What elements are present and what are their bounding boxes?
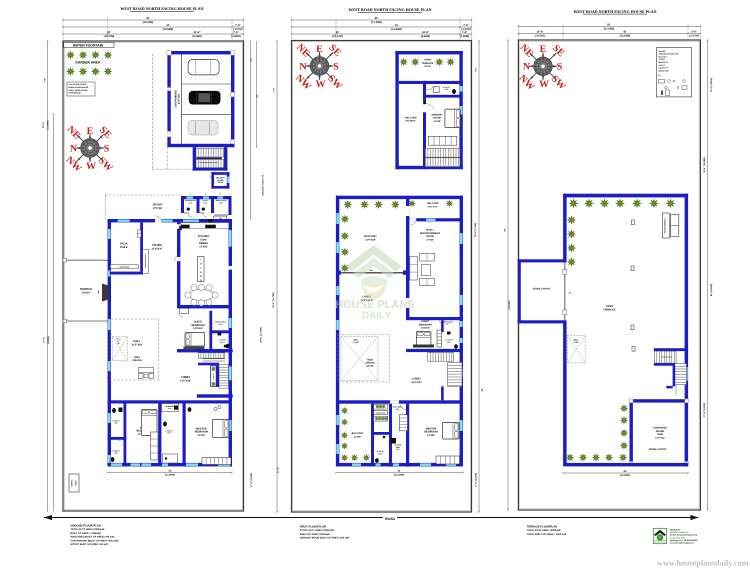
svg-text:11'X20': 11'X20' xyxy=(354,435,362,438)
svg-text:17'5"X8': 17'5"X8' xyxy=(153,207,163,210)
svg-text:23'0"X20': 23'0"X20' xyxy=(178,93,181,104)
svg-text:ROOM: ROOM xyxy=(218,181,224,184)
svg-text:[13.56M]: [13.56M] xyxy=(163,28,174,31)
svg-text:TOTAL PLOT AREA =5000sqft: TOTAL PLOT AREA =5000sqft xyxy=(527,529,561,532)
svg-text:BALCONY: BALCONY xyxy=(427,202,439,205)
svg-text:W: W xyxy=(539,79,549,90)
svg-text:17'-6" [5.33M]: 17'-6" [5.33M] xyxy=(250,473,253,487)
svg-text:[12.80M]: [12.80M] xyxy=(620,474,630,477)
svg-text:42': 42' xyxy=(623,470,627,473)
svg-text:DAILY: DAILY xyxy=(362,311,391,322)
svg-text:[11.59M]: [11.59M] xyxy=(47,120,50,129)
svg-text:42': 42' xyxy=(623,30,627,33)
svg-text:15 DP: 15 DP xyxy=(574,341,580,344)
svg-text:20'-6" [1.74M]: 20'-6" [1.74M] xyxy=(474,223,477,237)
svg-text:WEST ROAD NORTH FACING HOUSE P: WEST ROAD NORTH FACING HOUSE PLAN xyxy=(120,6,203,11)
svg-text:BALCONY: BALCONY xyxy=(405,116,417,119)
svg-text:[1.07M]: [1.07M] xyxy=(690,35,699,38)
svg-text:[4.02M]: [4.02M] xyxy=(536,35,545,38)
svg-text:E: E xyxy=(87,126,94,137)
svg-text:GARDEN AREA: GARDEN AREA xyxy=(75,60,101,64)
svg-text:50': 50' xyxy=(504,228,507,231)
svg-text:4'X5': 4'X5' xyxy=(445,88,449,91)
svg-text:17'-6": 17'-6" xyxy=(43,337,46,343)
svg-text:17'X20': 17'X20' xyxy=(199,246,208,249)
svg-text:50'-6" [15.39M]: 50'-6" [15.39M] xyxy=(703,157,706,173)
svg-text:DESIGN BY: DESIGN BY xyxy=(670,529,681,532)
svg-text:ALL WATER TANKS,: ALL WATER TANKS, xyxy=(69,83,88,86)
svg-text:MD=3'6"X7': MD=3'6"X7' xyxy=(659,61,670,64)
svg-text:14'X20': 14'X20' xyxy=(366,365,374,368)
svg-text:17'9"X20': 17'9"X20' xyxy=(655,437,665,440)
svg-text:CEILING: CEILING xyxy=(365,362,375,365)
svg-text:BEDROOM: BEDROOM xyxy=(419,323,431,326)
svg-text:TANK: TANK xyxy=(657,433,664,436)
svg-text:KERALA ROOF: KERALA ROOF xyxy=(649,448,667,451)
svg-text:E: E xyxy=(316,44,323,55)
svg-text:[13.56M]: [13.56M] xyxy=(391,28,402,31)
svg-text:BUILT UP AREA =2913sqft: BUILT UP AREA =2913sqft xyxy=(300,533,330,536)
svg-text:4'X6': 4'X6' xyxy=(219,201,223,204)
svg-text:14'X20': 14'X20' xyxy=(427,434,435,437)
svg-text:CEILING: CEILING xyxy=(132,359,142,362)
svg-text:W: W xyxy=(86,161,96,172)
svg-text:[12.50M]: [12.50M] xyxy=(394,474,404,477)
svg-text:14'X20': 14'X20' xyxy=(197,434,205,437)
svg-text:7'-6": 7'-6" xyxy=(462,31,468,34)
svg-text:21'5"X16': 21'5"X16' xyxy=(132,343,143,346)
svg-text:WATER FOUNTAIN: WATER FOUNTAIN xyxy=(73,43,104,47)
svg-text:TOTAL BUILT UP AREA = 1609 sqf: TOTAL BUILT UP AREA = 1609 sqft xyxy=(527,533,567,536)
svg-text:11'5"X16': 11'5"X16' xyxy=(411,381,422,384)
svg-text:8'6"X20'3": 8'6"X20'3" xyxy=(406,120,417,123)
svg-text:www.houseplansdaily.com: www.houseplansdaily.com xyxy=(657,558,749,567)
svg-text:4'X6': 4'X6' xyxy=(447,341,451,344)
svg-text:[15.24M]: [15.24M] xyxy=(508,300,511,309)
svg-text:BUILT UP AREA = 3258sqft: BUILT UP AREA = 3258sqft xyxy=(71,532,102,535)
svg-text:10'X10.5': 10'X10.5' xyxy=(193,327,203,330)
svg-text:LBW=4'X2.5'/LW=4'X2': LBW=4'X2.5'/LW=4'X2' xyxy=(659,53,680,56)
svg-text:WEST ROAD NORTH FACING HOUSE P: WEST ROAD NORTH FACING HOUSE PLAN xyxy=(348,7,431,12)
svg-text:TERRACE FLOORPLAN: TERRACE FLOORPLAN xyxy=(527,526,558,529)
svg-text:N: N xyxy=(70,143,78,154)
svg-text:7'-6": 7'-6" xyxy=(273,88,276,93)
svg-text:24'-6": 24'-6" xyxy=(193,31,201,34)
svg-text:SEPTIC: SEPTIC xyxy=(71,479,74,487)
svg-text:30'-6": 30'-6" xyxy=(42,122,45,128)
svg-text:[6.56M]: [6.56M] xyxy=(193,35,202,38)
svg-text:SITOUT BUILT UP AREA =42 sqft: SITOUT BUILT UP AREA =42 sqft xyxy=(71,543,108,546)
svg-text:7'-6": 7'-6" xyxy=(475,68,478,73)
svg-text:HOUSE PLANS: HOUSE PLANS xyxy=(335,299,414,311)
svg-text:W: W xyxy=(316,79,326,90)
svg-text:DON'T MAKE WATER: DON'T MAKE WATER xyxy=(69,89,89,92)
svg-text:[15.24M]: [15.24M] xyxy=(143,21,154,24)
svg-text:whatsapp no : +91 9072265963: whatsapp no : +91 9072265963 xyxy=(670,539,697,542)
svg-text:17'5"X7'3": 17'5"X7'3" xyxy=(428,205,439,208)
svg-text:13'X16'9": 13'X16'9" xyxy=(152,247,164,250)
svg-text:7'-6": 7'-6" xyxy=(233,31,239,34)
svg-text:HIGH: HIGH xyxy=(367,358,373,361)
svg-text:11'X10'2": 11'X10'2" xyxy=(421,327,431,330)
svg-text:7'-6": 7'-6" xyxy=(250,58,253,63)
svg-text:24'-6": 24'-6" xyxy=(422,31,430,34)
svg-text:PLANTS: PLANTS xyxy=(213,374,215,380)
svg-text:E: E xyxy=(540,44,547,55)
svg-text:HOUSEPLANSDAILY: HOUSEPLANSDAILY xyxy=(670,531,689,534)
svg-text:50': 50' xyxy=(607,23,611,26)
svg-text:BALCONY: BALCONY xyxy=(352,432,364,435)
svg-text:7'-6": 7'-6" xyxy=(235,24,241,27)
svg-text:[17.99M]: [17.99M] xyxy=(371,21,382,24)
svg-text:7'-6": 7'-6" xyxy=(463,24,469,27)
svg-text:SOLAR PANELS: SOLAR PANELS xyxy=(664,217,667,232)
svg-text:21'9"X24': 21'9"X24' xyxy=(365,238,376,241)
svg-text:8'X8.6': 8'X8.6' xyxy=(120,246,128,249)
svg-text:[1.89M]: [1.89M] xyxy=(232,35,241,38)
svg-text:[10.37M]: [10.37M] xyxy=(104,35,115,38)
svg-text:50': 50' xyxy=(375,17,379,20)
svg-text:ROOM: ROOM xyxy=(426,235,433,238)
svg-text:D=3'X7': D=3'X7' xyxy=(659,64,666,67)
svg-text:17'-6" [5.33M]: 17'-6" [5.33M] xyxy=(703,403,706,417)
svg-text:[12.80M]: [12.80M] xyxy=(620,35,631,38)
svg-text:15 DP: 15 DP xyxy=(353,341,359,344)
svg-text:14'X10': 14'X10' xyxy=(82,291,91,294)
svg-text:WADI AREA (BUILT UP AREA) =90: WADI AREA (BUILT UP AREA) =90 sqft xyxy=(71,536,115,539)
svg-text:W1=5'X4': W1=5'X4' xyxy=(659,55,668,58)
svg-text:B.Tech Structural Engineering: B.Tech Structural Engineering xyxy=(670,534,698,537)
svg-text:FIRST FLOOR PLAN: FIRST FLOOR PLAN xyxy=(300,526,326,529)
svg-text:50': 50' xyxy=(146,17,150,20)
svg-text:7'-6": 7'-6" xyxy=(44,78,47,83)
svg-text:42': 42' xyxy=(397,469,401,472)
svg-text:T=2'X2': T=2'X2' xyxy=(659,58,666,61)
svg-text:[10.37M]: [10.37M] xyxy=(332,35,343,38)
svg-text:12'-6": 12'-6" xyxy=(536,30,544,33)
svg-text:42': 42' xyxy=(168,469,172,472)
svg-text:W: W xyxy=(659,74,661,77)
svg-text:17'-6" [5.33M]: 17'-6" [5.33M] xyxy=(475,473,478,487)
svg-text:BEDROOM: BEDROOM xyxy=(195,431,208,434)
svg-text:ROAD: ROAD xyxy=(385,517,396,521)
svg-text:S: S xyxy=(557,62,563,73)
svg-text:40': 40' xyxy=(481,388,484,391)
svg-text:N: N xyxy=(523,62,531,73)
svg-text:GROUND FLOOR PLAN: GROUND FLOOR PLAN xyxy=(71,525,101,528)
svg-text:@ graduate daily: @ graduate daily xyxy=(670,536,686,539)
svg-text:BEDROOM: BEDROOM xyxy=(424,431,437,434)
svg-text:50'-6" [11.79M]: 50'-6" [11.79M] xyxy=(272,292,275,307)
svg-text:HARVESTING: HARVESTING xyxy=(69,92,82,95)
svg-text:4'X7': 4'X7' xyxy=(446,323,450,326)
svg-text:TOTAL PLOT AREA =5000sqft: TOTAL PLOT AREA =5000sqft xyxy=(300,529,334,532)
svg-text:BORE & RAIN WATER: BORE & RAIN WATER xyxy=(69,86,89,89)
svg-text:ROOM: ROOM xyxy=(433,117,440,120)
svg-text:30': 30' xyxy=(107,31,111,34)
svg-text:BEDROOM: BEDROOM xyxy=(191,324,204,327)
svg-text:BUILDING HEIGHT 30': BUILDING HEIGHT 30' xyxy=(262,174,265,196)
svg-text:CAR PARKING (BUILT UP AREA =65: CAR PARKING (BUILT UP AREA =650 sqft) xyxy=(71,539,119,542)
svg-text:36'-6" [11.13M]: 36'-6" [11.13M] xyxy=(260,327,263,342)
svg-text:[17.99M]: [17.99M] xyxy=(604,28,615,31)
svg-text:www.houseplansdaily.com: www.houseplansdaily.com xyxy=(670,542,694,545)
svg-text:TOTAL PLOT AREA =5000sqft: TOTAL PLOT AREA =5000sqft xyxy=(71,528,105,531)
svg-text:4'X6': 4'X6' xyxy=(203,201,207,204)
svg-text:KERALA ROOF: KERALA ROOF xyxy=(533,288,551,291)
svg-text:WD=4.5'X8': WD=4.5'X8' xyxy=(659,69,670,72)
svg-text:60' [18.29M]: 60' [18.29M] xyxy=(710,284,713,297)
svg-text:30': 30' xyxy=(336,31,340,34)
svg-text:17'-6": 17'-6" xyxy=(277,467,280,473)
svg-text:44': 44' xyxy=(395,24,399,27)
svg-text:WEST ROAD NORTH FACING HOUSE P: WEST ROAD NORTH FACING HOUSE PLAN xyxy=(573,9,656,14)
svg-text:TERRACE: TERRACE xyxy=(603,308,616,311)
svg-text:W=4'X4': W=4'X4' xyxy=(659,50,667,53)
svg-text:12'-6" [3.81M]: 12'-6" [3.81M] xyxy=(710,78,713,92)
svg-text:[1.89M]: [1.89M] xyxy=(460,35,469,38)
svg-text:[5.33M]: [5.33M] xyxy=(47,336,50,344)
svg-text:TERRACE: TERRACE xyxy=(422,62,434,65)
svg-text:D1=2'6"X7': D1=2'6"X7' xyxy=(659,67,669,70)
svg-text:SERVANT ROOM BUILT UP AREA =16: SERVANT ROOM BUILT UP AREA =169 sqft xyxy=(300,537,349,540)
svg-text:4'X6': 4'X6' xyxy=(188,201,192,204)
svg-text:[6.56M]: [6.56M] xyxy=(421,35,430,38)
svg-text:11'X16': 11'X16' xyxy=(433,120,441,123)
svg-text:44': 44' xyxy=(166,24,170,27)
svg-text:TANK: TANK xyxy=(75,480,78,486)
svg-text:S: S xyxy=(104,143,110,154)
svg-text:11'5"X16': 11'5"X16' xyxy=(180,380,191,383)
svg-text:4'X7': 4'X7' xyxy=(219,323,223,326)
svg-text:20': 20' xyxy=(256,94,259,97)
svg-text:20'X9': 20'X9' xyxy=(424,65,431,68)
svg-text:N: N xyxy=(299,61,307,72)
svg-text:17'X20': 17'X20' xyxy=(426,239,434,242)
svg-text:[12.80M]: [12.80M] xyxy=(165,474,175,477)
svg-text:2'-6": 2'-6" xyxy=(691,30,697,33)
svg-text:4'X7'6": 4'X7'6" xyxy=(220,341,226,344)
svg-text:S: S xyxy=(333,61,339,72)
